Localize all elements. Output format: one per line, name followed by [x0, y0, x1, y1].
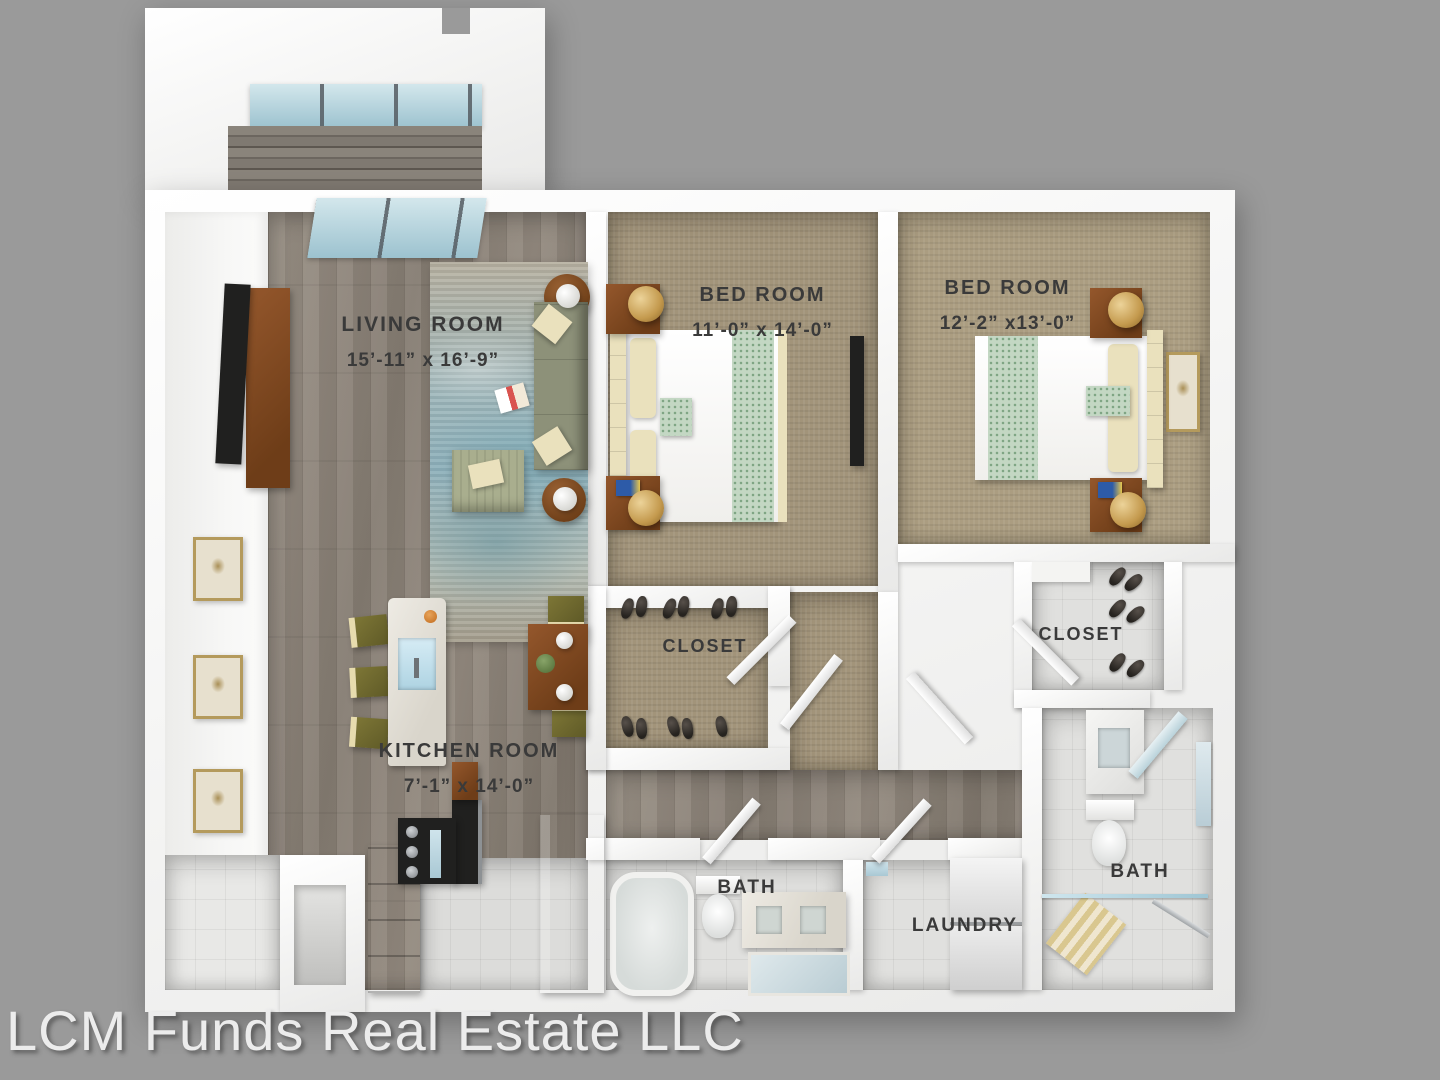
bedroom2-label: BED ROOM 12’-2” x13’-0” [905, 277, 1110, 335]
laundry-label: LAUNDRY [902, 915, 1028, 937]
wall-under-bedroom2 [898, 544, 1235, 562]
bathtub [610, 872, 694, 996]
sink-faucet [414, 658, 419, 678]
closet1-wall-left [586, 586, 606, 770]
closet1-name: CLOSET [650, 636, 760, 657]
bedroom2-name: BED ROOM [905, 277, 1110, 300]
bar-stool [349, 666, 389, 698]
closet2-shelf [1032, 562, 1090, 582]
wall-corridor-east [878, 592, 898, 770]
fruit-bowl [424, 610, 437, 623]
bath1-label: BATH [707, 877, 787, 899]
dinner-plate [556, 632, 573, 649]
bedroom2-dims: 12’-2” x13’-0” [905, 313, 1110, 335]
closet1-wall-bottom [586, 748, 790, 770]
bed1-pillow [630, 338, 656, 418]
laundry-window [866, 862, 888, 876]
entry-nook-recess [294, 885, 346, 985]
table-lamp [556, 284, 580, 308]
living-room-label: LIVING ROOM 15’-11” x 16’-9” [318, 313, 528, 372]
kitchen-label: KITCHEN ROOM 7’-1” x 14’-0” [363, 740, 575, 798]
gold-lamp [628, 286, 664, 322]
table-lamp [553, 487, 577, 511]
closet2-label: CLOSET [1026, 624, 1136, 645]
gold-lamp [1110, 492, 1146, 528]
closet2-wall-bottom [1014, 690, 1150, 708]
toilet-bowl [1092, 820, 1126, 866]
table-plant [536, 654, 555, 673]
living-room-window [307, 198, 487, 258]
watermark-text: LCM Funds Real Estate LLC [6, 998, 744, 1063]
wall-bedroom1-bedroom2 [878, 212, 898, 592]
balcony-wood-deck [228, 126, 482, 192]
vanity-sink [756, 906, 782, 934]
bed2-accent-pillow [1086, 386, 1130, 416]
wall-laundry-bath2 [1022, 708, 1042, 990]
bath2-name: BATH [1100, 861, 1180, 883]
bed1-footboard [778, 330, 787, 522]
closet2-name: CLOSET [1026, 624, 1136, 645]
bar-stool [349, 614, 390, 648]
bedroom1-dims: 11’-0” x 14’-0” [660, 320, 865, 342]
living-room-dims: 15’-11” x 16’-9” [318, 350, 528, 372]
wall-art-frame [193, 655, 243, 719]
bath2-label: BATH [1100, 861, 1180, 883]
kitchen-desk [540, 815, 604, 993]
tv-bedroom1 [850, 336, 864, 466]
bath1-name: BATH [707, 877, 787, 899]
toilet-bowl [702, 894, 734, 938]
dining-chair [548, 596, 584, 627]
balcony-glass-railing [250, 84, 482, 128]
wall-art-frame [193, 769, 243, 833]
bed2-headboard [1147, 330, 1163, 488]
bed1-accent-pillow [660, 398, 692, 436]
laundry-name: LAUNDRY [902, 915, 1028, 937]
toilet-tank [1086, 800, 1134, 820]
dining-chair [552, 706, 586, 737]
hallway-wood-floor [606, 770, 1042, 840]
dinner-plate [556, 684, 573, 701]
bedroom1-door-corridor [790, 592, 878, 770]
bath2-wall-mirror [1196, 742, 1211, 826]
floor-plan-3d: LIVING ROOM 15’-11” x 16’-9” BED ROOM 11… [0, 0, 1440, 1080]
entry-tile [165, 855, 280, 990]
vanity-sink [1098, 728, 1130, 768]
vanity-sink [800, 906, 826, 934]
tv-console [246, 288, 290, 488]
bedroom1-name: BED ROOM [660, 284, 865, 307]
closet2-wall-right [1164, 562, 1182, 690]
bedroom2-wall-art [1166, 352, 1200, 432]
stove-knob [406, 846, 418, 858]
stove-knob [406, 866, 418, 878]
closet1-label: CLOSET [650, 636, 760, 657]
shower-glass-panel [1042, 894, 1208, 898]
wall-living-bedroom1 [586, 212, 606, 588]
hall-wall-seg [768, 838, 880, 860]
gold-lamp [1108, 292, 1144, 328]
bed1-runner [732, 330, 774, 522]
kitchen-dims: 7’-1” x 14’-0” [363, 776, 575, 798]
oven [452, 800, 482, 884]
oven-door-glass [430, 830, 441, 878]
stove-knob [406, 826, 418, 838]
bath1-mirror [748, 952, 850, 996]
living-room-name: LIVING ROOM [318, 313, 528, 337]
wall-art-frame [193, 537, 243, 601]
laundry-wall-seg [948, 838, 1022, 860]
gold-lamp [628, 490, 664, 526]
kitchen-name: KITCHEN ROOM [363, 740, 575, 763]
bed2-runner [988, 336, 1038, 480]
bedroom1-label: BED ROOM 11’-0” x 14’-0” [660, 284, 865, 342]
wall-notch [442, 8, 470, 34]
